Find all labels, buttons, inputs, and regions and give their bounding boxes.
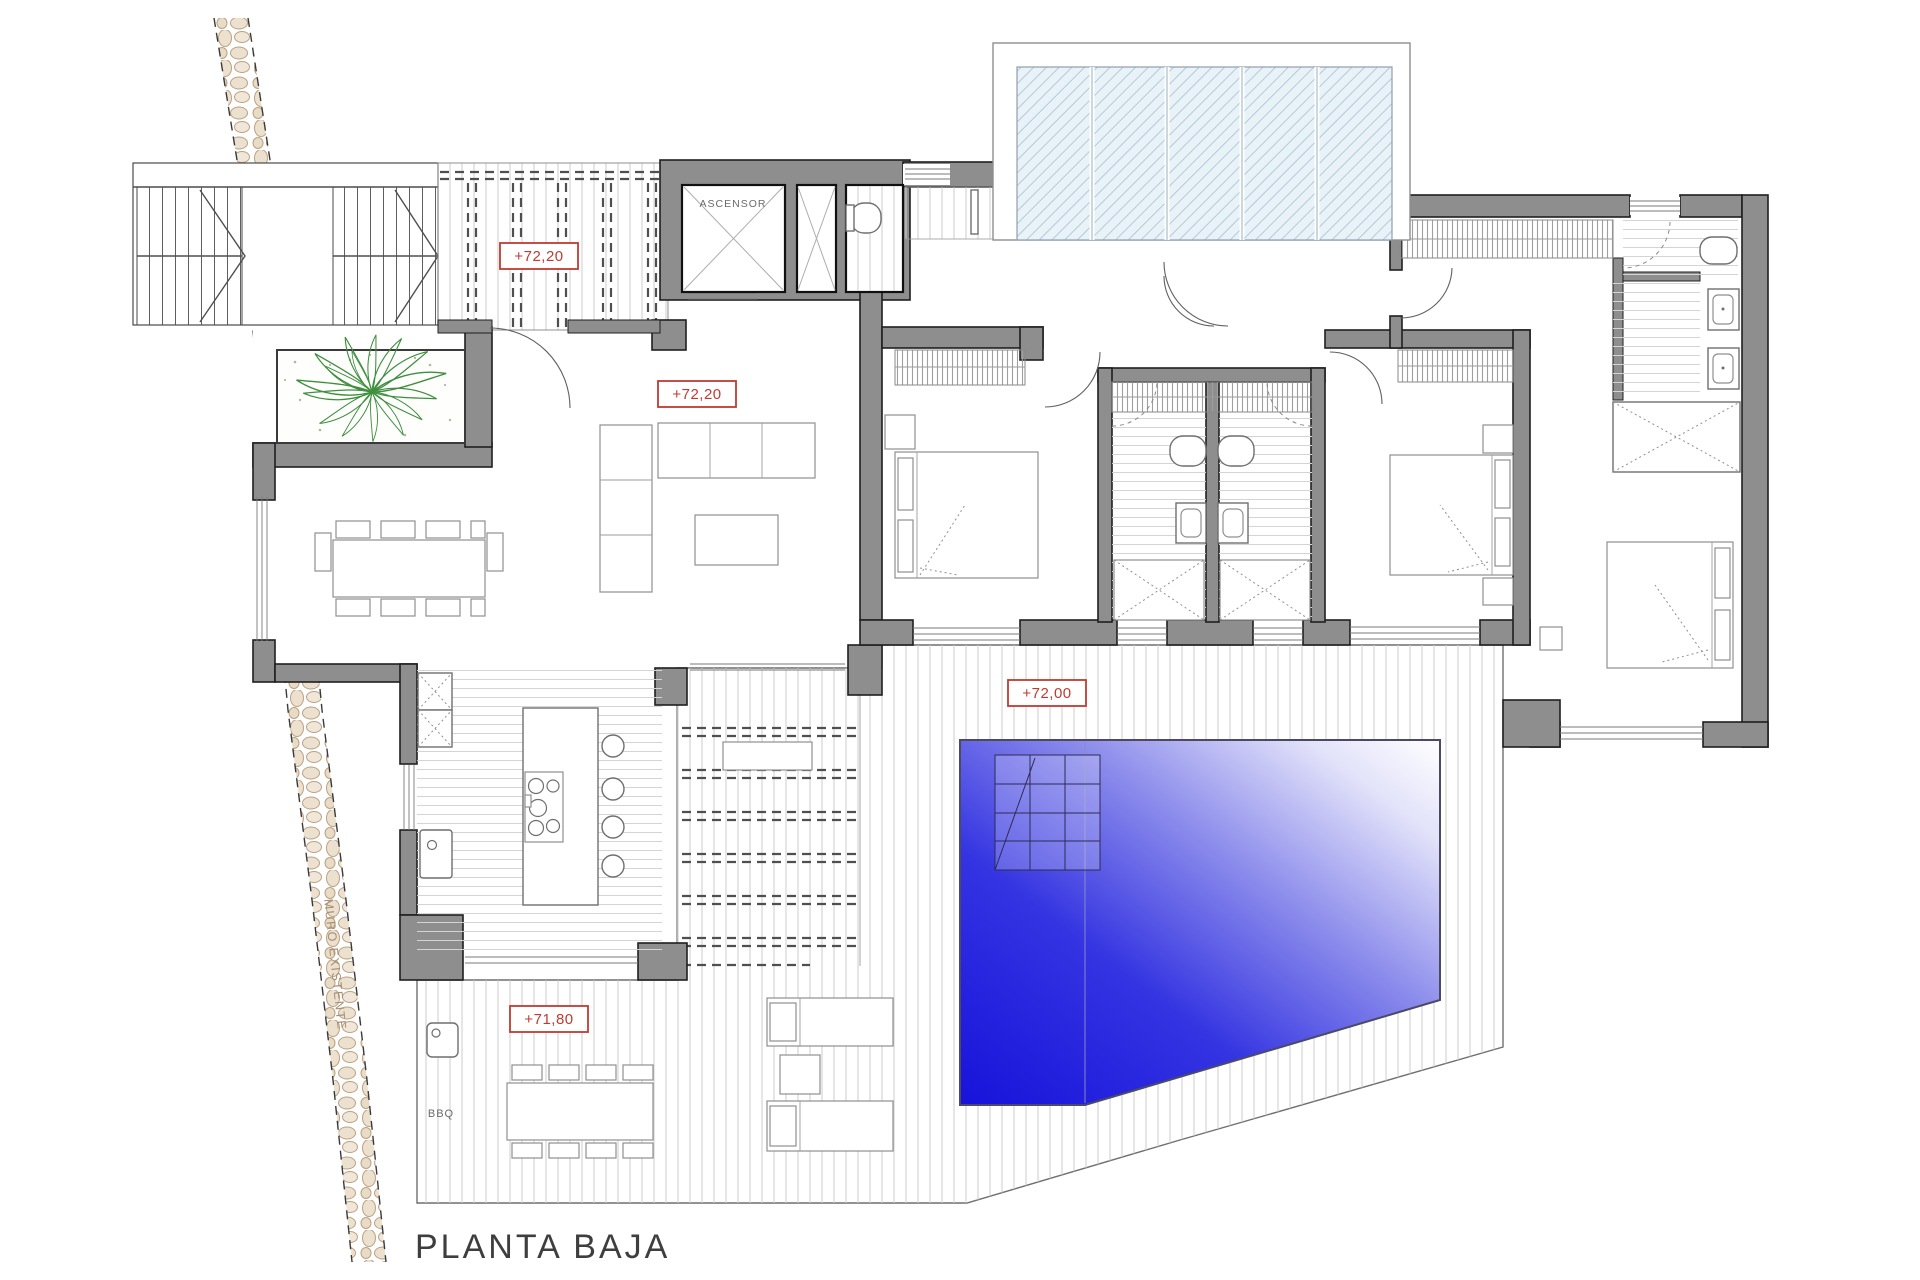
floor-plan-drawing: ASCENSOR	[0, 0, 1920, 1280]
svg-text:+72,00: +72,00	[1022, 685, 1071, 702]
coffee-table	[695, 515, 778, 565]
floor-plan-page: ASCENSOR	[0, 0, 1920, 1280]
level-marker-bbq: +71,80	[510, 1006, 588, 1032]
wc-toilet	[846, 203, 881, 233]
elevator-label: ASCENSOR	[700, 198, 767, 210]
cooktop	[525, 772, 563, 842]
svg-text:+71,80: +71,80	[524, 1011, 573, 1028]
svg-text:+72,20: +72,20	[514, 248, 563, 265]
skylight	[993, 43, 1410, 240]
entry-vestibule	[905, 187, 1000, 239]
level-marker-pergola: +72,20	[500, 243, 578, 269]
dining-set	[315, 521, 503, 616]
bbq-label: BBQ	[428, 1108, 454, 1120]
page-title: PLANTA BAJA	[415, 1228, 670, 1266]
kitchen-sink-counter	[420, 830, 452, 878]
level-marker-terrace: +72,00	[1008, 680, 1086, 706]
pool-steps	[995, 755, 1100, 870]
svg-text:+72,20: +72,20	[672, 386, 721, 403]
master-bed	[1607, 542, 1733, 668]
exterior-stairs	[133, 163, 438, 325]
entry-door-leaf	[971, 190, 978, 234]
level-marker-living: +72,20	[658, 381, 736, 407]
patio	[277, 334, 465, 443]
bbq-counter	[427, 1023, 458, 1057]
kitchen	[417, 662, 662, 958]
